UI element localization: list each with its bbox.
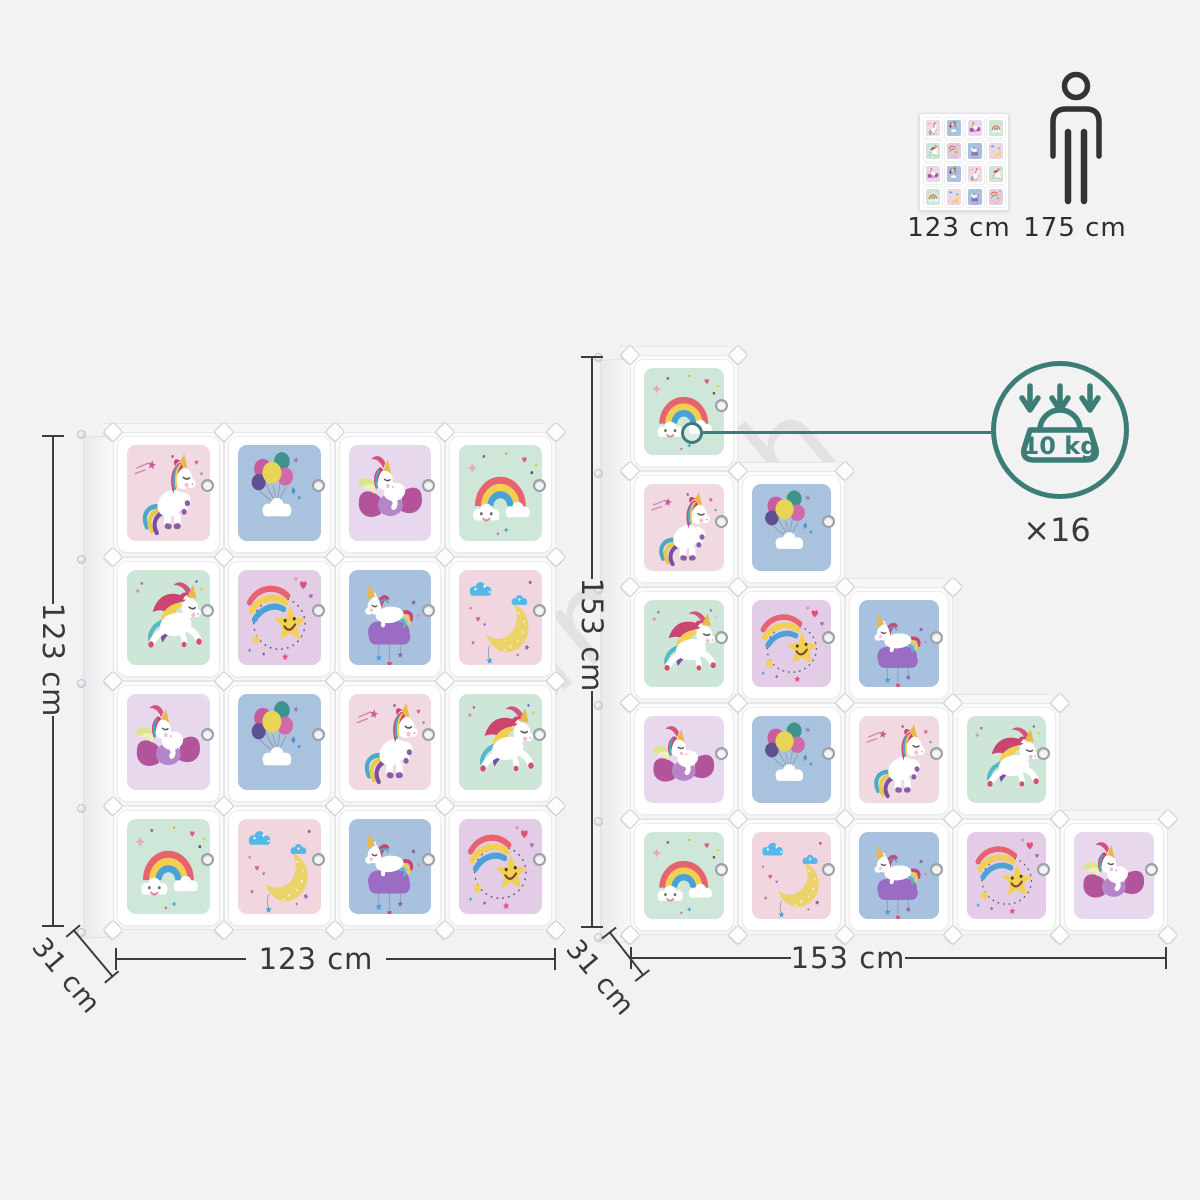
storage-cube: [985, 162, 1006, 185]
door-print: [926, 166, 940, 182]
storage-cube: [985, 185, 1006, 208]
unicorn-sleeping-on-cloud-icon: [968, 143, 982, 159]
balloons-over-cloud-icon: [752, 716, 832, 803]
rainbow-smiling-cloud-icon: [989, 120, 1003, 136]
door-print: [644, 716, 724, 803]
storage-cube: [845, 819, 953, 935]
storage-cube: [943, 116, 964, 139]
door-knob: [715, 399, 728, 412]
dimension-line: [631, 957, 791, 959]
unicorn-on-candy-bow-icon: [644, 716, 724, 803]
storage-cube: [964, 162, 985, 185]
storage-cube: [1060, 819, 1168, 935]
dimension-line: [905, 957, 1167, 959]
cube-door: [634, 359, 734, 467]
door-print: [1074, 832, 1154, 919]
door-print: [644, 600, 724, 687]
unicorn-on-candy-bow-icon: [1074, 832, 1154, 919]
person-icon: [1048, 70, 1104, 206]
storage-cube: [922, 116, 943, 139]
door-print: [947, 143, 961, 159]
door-print: [644, 832, 724, 919]
cube-door: [634, 707, 734, 815]
door-print: [989, 120, 1003, 136]
door-print: [926, 143, 940, 159]
door-print: [968, 143, 982, 159]
balloons-over-cloud-icon: [947, 120, 961, 136]
weight-capacity-icon: 10 kg: [996, 366, 1124, 494]
cube-door: [742, 591, 842, 699]
rainbow-smiling-cloud-icon: [644, 368, 724, 455]
door-print: [989, 143, 1003, 159]
cube-door: [634, 591, 734, 699]
door-print: [947, 166, 961, 182]
door-knob: [715, 631, 728, 644]
door-knob: [822, 747, 835, 760]
storage-cube: [630, 355, 738, 471]
door-knob: [822, 515, 835, 528]
cube-door: [923, 140, 943, 162]
product-dimension-image: alasans.ch 123 cm 175 cm 10 kg ×16: [0, 0, 1200, 1200]
door-print: [967, 832, 1047, 919]
storage-cube: [738, 471, 846, 587]
door-print: [947, 120, 961, 136]
cube-door: [965, 140, 985, 162]
dimension-line: [52, 716, 54, 927]
rearing-unicorn-icon: [644, 484, 724, 571]
storage-cube: [943, 185, 964, 208]
dimension-line: [591, 691, 593, 928]
cube-door: [923, 117, 943, 139]
cube-door: [986, 163, 1006, 185]
cube-door: [986, 117, 1006, 139]
leaping-unicorn-icon: [926, 143, 940, 159]
door-print: [968, 166, 982, 182]
cube-door: [944, 117, 964, 139]
unicorn-on-candy-bow-icon: [968, 120, 982, 136]
callout-ring: [681, 422, 703, 444]
cube-door: [965, 117, 985, 139]
door-print: [752, 600, 832, 687]
door-print: [968, 120, 982, 136]
unicorn-on-candy-bow-icon: [926, 166, 940, 182]
cube-door: [944, 186, 964, 208]
storage-cube: [738, 587, 846, 703]
door-knob: [1037, 863, 1050, 876]
cube-door: [742, 823, 842, 931]
door-knob: [715, 515, 728, 528]
storage-cube: [922, 185, 943, 208]
door-print: [752, 832, 832, 919]
dimension-line: [52, 436, 54, 604]
storage-cube: [943, 139, 964, 162]
thumbnail-width-label: 123 cm: [907, 213, 1011, 243]
door-print: [752, 484, 832, 571]
cube-door: [965, 163, 985, 185]
weight-capacity-label: 10 kg: [1023, 432, 1098, 460]
left-cabinet-width-label: 123 cm: [259, 942, 374, 976]
cube-door: [849, 823, 949, 931]
door-print: [859, 832, 939, 919]
crescent-moon-clouds-icon: [752, 832, 832, 919]
door-print: [968, 189, 982, 205]
balloons-over-cloud-icon: [947, 166, 961, 182]
cube-door: [634, 475, 734, 583]
storage-cube: [964, 116, 985, 139]
rainbow-shooting-star-icon: [947, 143, 961, 159]
connector-pin: [594, 701, 603, 710]
storage-cube: [922, 162, 943, 185]
door-count-label: ×16: [1023, 511, 1091, 549]
door-knob: [930, 747, 943, 760]
leaping-unicorn-icon: [989, 166, 1003, 182]
rainbow-shooting-star-icon: [989, 189, 1003, 205]
dimension-tick: [581, 926, 603, 928]
right-cabinet-width-label: 153 cm: [791, 941, 906, 975]
door-print: [926, 120, 940, 136]
storage-cube: [630, 471, 738, 587]
cube-door: [849, 707, 949, 815]
door-knob: [715, 747, 728, 760]
person-height-label: 175 cm: [1023, 213, 1127, 243]
storage-cube: [738, 703, 846, 819]
cube-door: [944, 163, 964, 185]
door-knob: [930, 863, 943, 876]
dimension-line: [386, 958, 556, 960]
balloons-over-cloud-icon: [752, 484, 832, 571]
unicorn-sleeping-on-cloud-icon: [859, 832, 939, 919]
cube-door: [957, 707, 1057, 815]
cube-door: [965, 186, 985, 208]
door-print: [967, 716, 1047, 803]
left-cabinet-height-label: 123 cm: [36, 603, 70, 718]
dimension-tick: [554, 948, 556, 970]
rainbow-shooting-star-icon: [967, 832, 1047, 919]
cube-door: [634, 823, 734, 931]
organizer-thumbnail-icon: [919, 113, 1009, 211]
door-knob: [822, 631, 835, 644]
leaping-unicorn-icon: [644, 600, 724, 687]
crescent-moon-clouds-icon: [989, 143, 1003, 159]
cube-door: [944, 140, 964, 162]
storage-cube: [964, 185, 985, 208]
door-knob: [822, 863, 835, 876]
cube-door: [742, 475, 842, 583]
connector-pin: [594, 817, 603, 826]
storage-cube: [845, 587, 953, 703]
unicorn-sleeping-on-cloud-icon: [968, 189, 982, 205]
dimension-tick: [1165, 947, 1167, 969]
storage-cube: [985, 139, 1006, 162]
dimension-line: [591, 357, 593, 579]
cube-door: [923, 163, 943, 185]
storage-cube: [630, 587, 738, 703]
cube-door: [1064, 823, 1164, 931]
cube-door: [957, 823, 1057, 931]
cube-door: [986, 140, 1006, 162]
storage-cube: [953, 703, 1061, 819]
load-capacity-badge: 10 kg: [991, 361, 1129, 499]
door-knob: [1145, 863, 1158, 876]
storage-cube: [738, 819, 846, 935]
leaping-unicorn-icon: [967, 716, 1047, 803]
storage-cube: [630, 819, 738, 935]
door-print: [644, 368, 724, 455]
dimension-tick: [42, 925, 64, 927]
crescent-moon-clouds-icon: [947, 189, 961, 205]
storage-cube: [964, 139, 985, 162]
door-knob: [930, 631, 943, 644]
cube-door: [986, 186, 1006, 208]
door-print: [859, 600, 939, 687]
door-knob: [715, 863, 728, 876]
rearing-unicorn-icon: [859, 716, 939, 803]
cube-door: [742, 707, 842, 815]
storage-cube: [985, 116, 1006, 139]
door-print: [752, 716, 832, 803]
rainbow-smiling-cloud-icon: [926, 189, 940, 205]
rearing-unicorn-icon: [968, 166, 982, 182]
door-print: [859, 716, 939, 803]
unicorn-sleeping-on-cloud-icon: [859, 600, 939, 687]
dimension-line: [116, 958, 246, 960]
door-print: [947, 189, 961, 205]
callout-line: [703, 431, 991, 434]
rainbow-shooting-star-icon: [752, 600, 832, 687]
right-cabinet-height-label: 153 cm: [575, 578, 609, 693]
door-print: [644, 484, 724, 571]
door-print: [926, 189, 940, 205]
rainbow-smiling-cloud-icon: [644, 832, 724, 919]
storage-cube: [630, 703, 738, 819]
cube-door: [923, 186, 943, 208]
connector-pin: [594, 469, 603, 478]
storage-cube: [943, 162, 964, 185]
storage-cube: [845, 703, 953, 819]
storage-cube: [922, 139, 943, 162]
cube-door: [849, 591, 949, 699]
rearing-unicorn-icon: [926, 120, 940, 136]
door-knob: [1037, 747, 1050, 760]
storage-cube: [953, 819, 1061, 935]
door-print: [989, 166, 1003, 182]
door-print: [989, 189, 1003, 205]
